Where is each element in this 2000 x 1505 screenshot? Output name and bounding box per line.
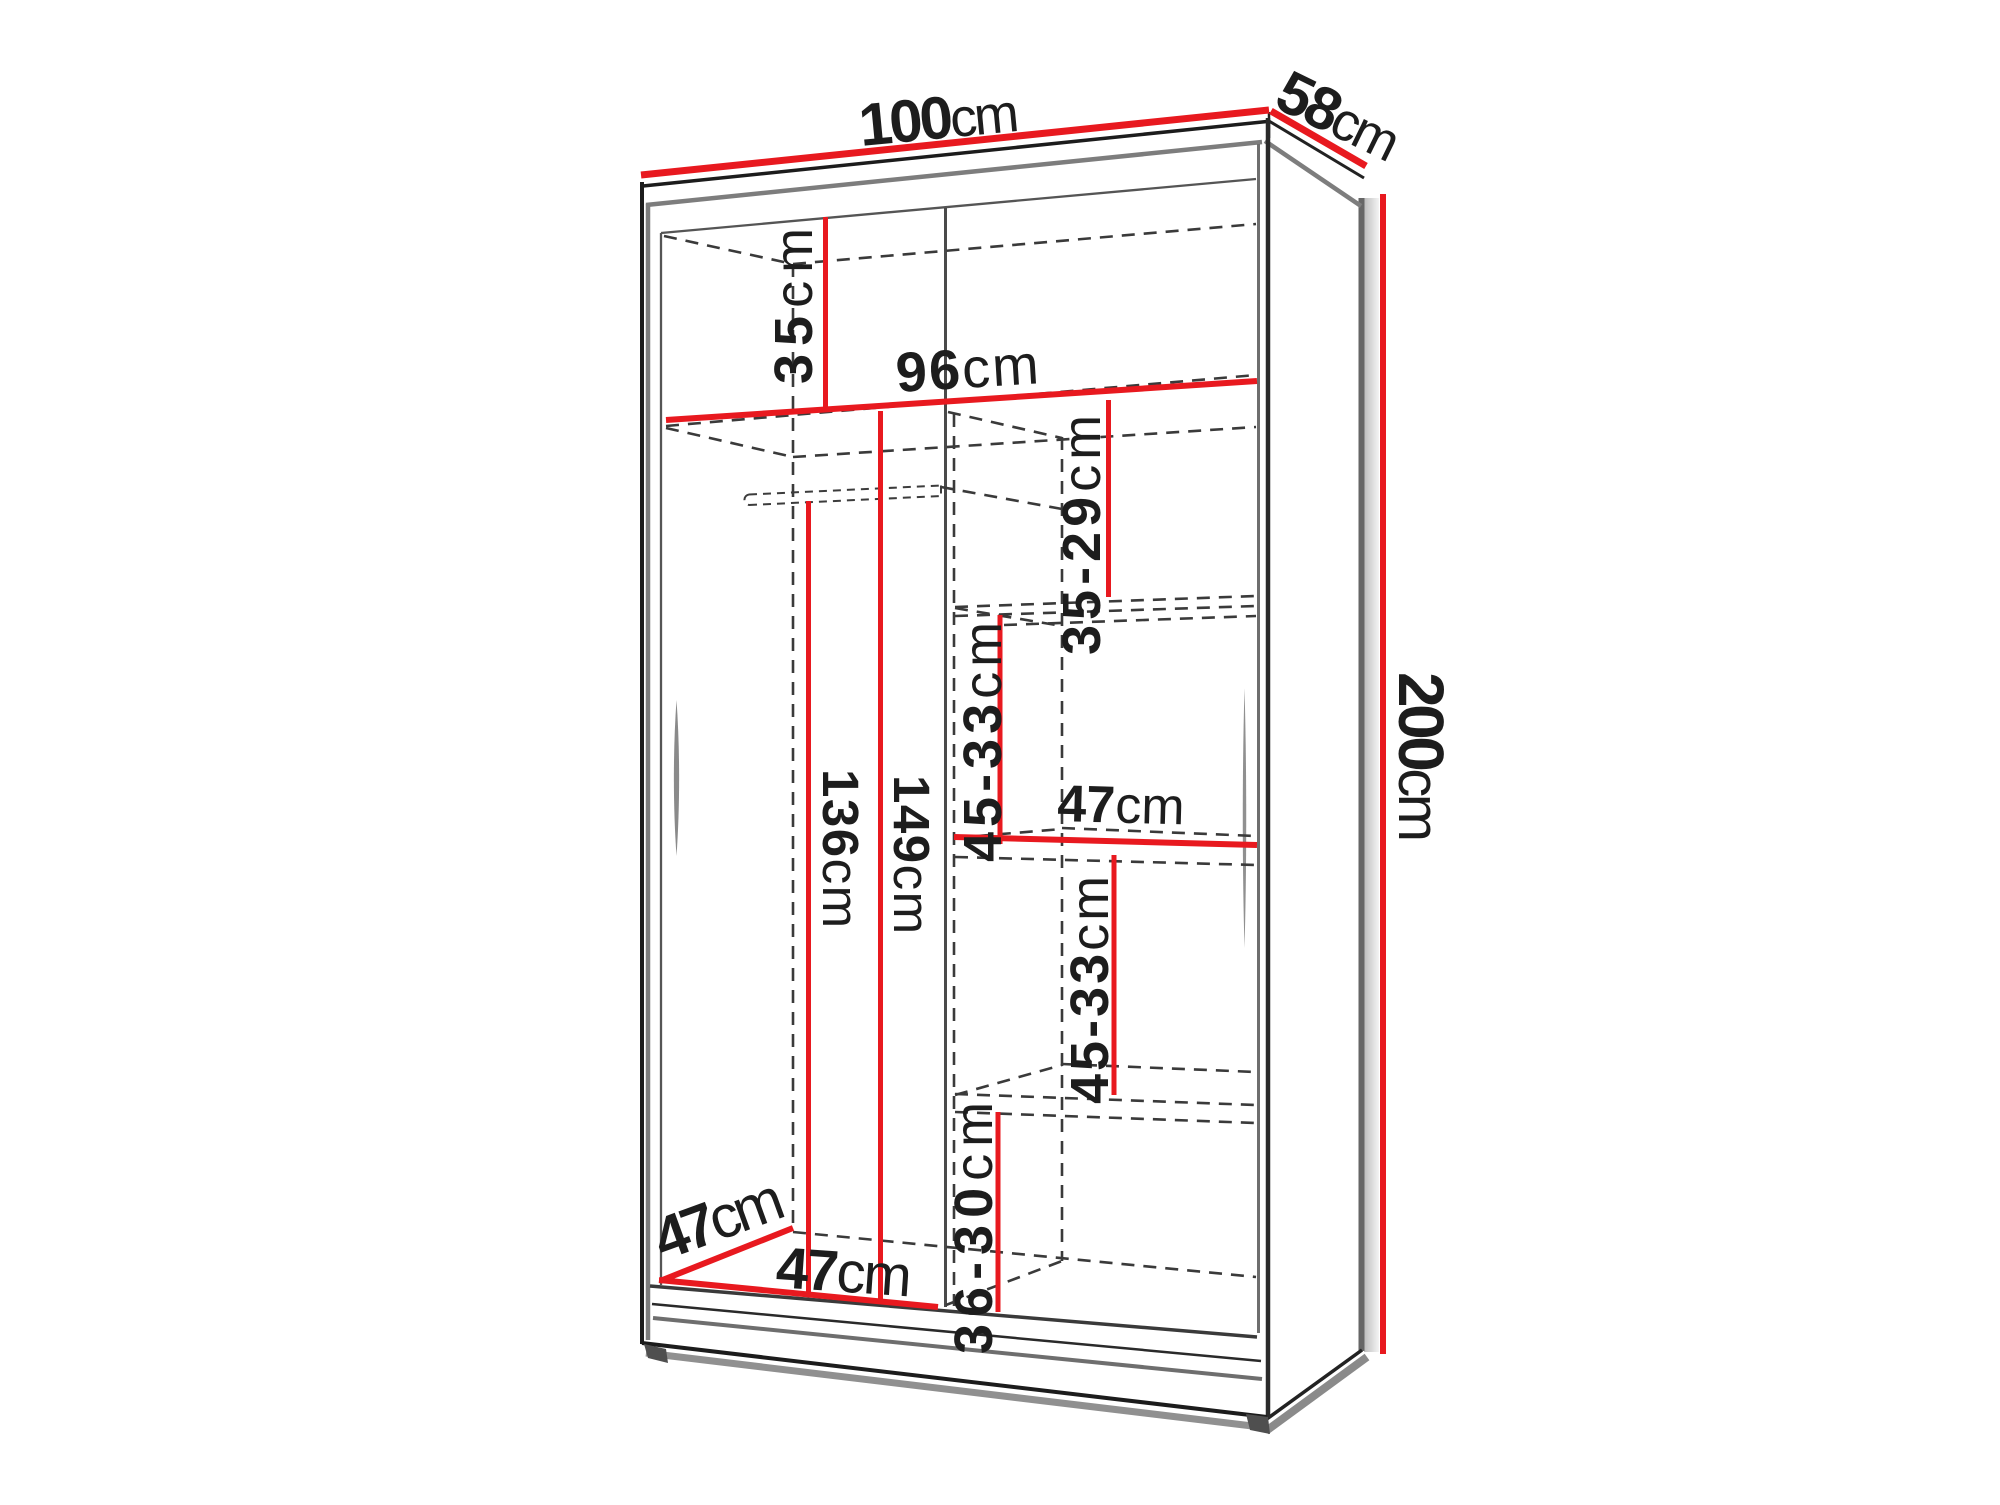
- svg-text:136cm: 136cm: [812, 769, 869, 930]
- svg-text:200cm: 200cm: [1385, 672, 1457, 839]
- svg-text:35-29cm: 35-29cm: [1052, 410, 1112, 655]
- svg-text:35cm: 35cm: [764, 220, 824, 384]
- svg-text:36-30cm: 36-30cm: [944, 1095, 1004, 1354]
- svg-text:47cm: 47cm: [1057, 775, 1186, 836]
- svg-text:45-33cm: 45-33cm: [953, 617, 1013, 862]
- svg-text:96cm: 96cm: [894, 332, 1043, 404]
- svg-text:45-33cm: 45-33cm: [1060, 873, 1120, 1104]
- svg-text:149cm: 149cm: [883, 775, 940, 936]
- svg-text:47cm: 47cm: [774, 1235, 912, 1309]
